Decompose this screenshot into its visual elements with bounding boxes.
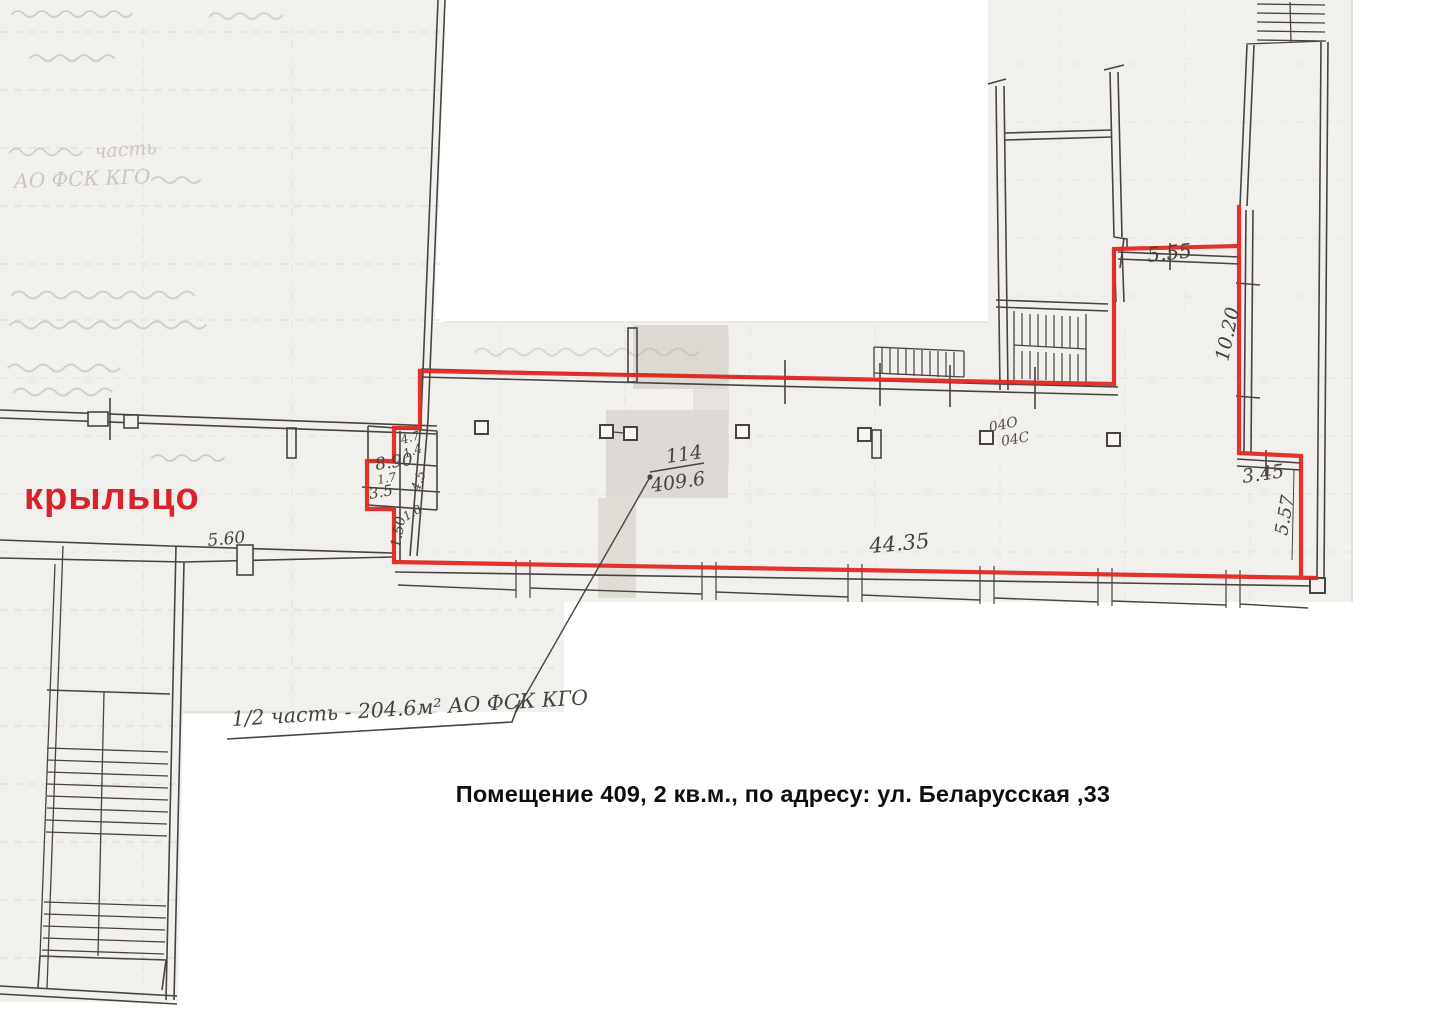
- porch-label: крыльцо: [24, 476, 200, 518]
- dim-5-60: 5.60: [207, 528, 247, 551]
- scan-paper-regions: [0, 0, 1352, 1002]
- pencil-note-line1: часть: [94, 137, 158, 163]
- floor-plan-drawing: часть АО ФСК КГО: [0, 0, 1440, 1034]
- pencil-note-line2: АО ФСК КГО: [11, 164, 151, 193]
- page-caption: Помещение 409, 2 кв.м., по адресу: ул. Б…: [456, 781, 1110, 807]
- toner-patch: [598, 498, 636, 598]
- dim-5-55: 5.55: [1146, 238, 1193, 267]
- floor-plan-page: часть АО ФСК КГО: [0, 0, 1440, 1034]
